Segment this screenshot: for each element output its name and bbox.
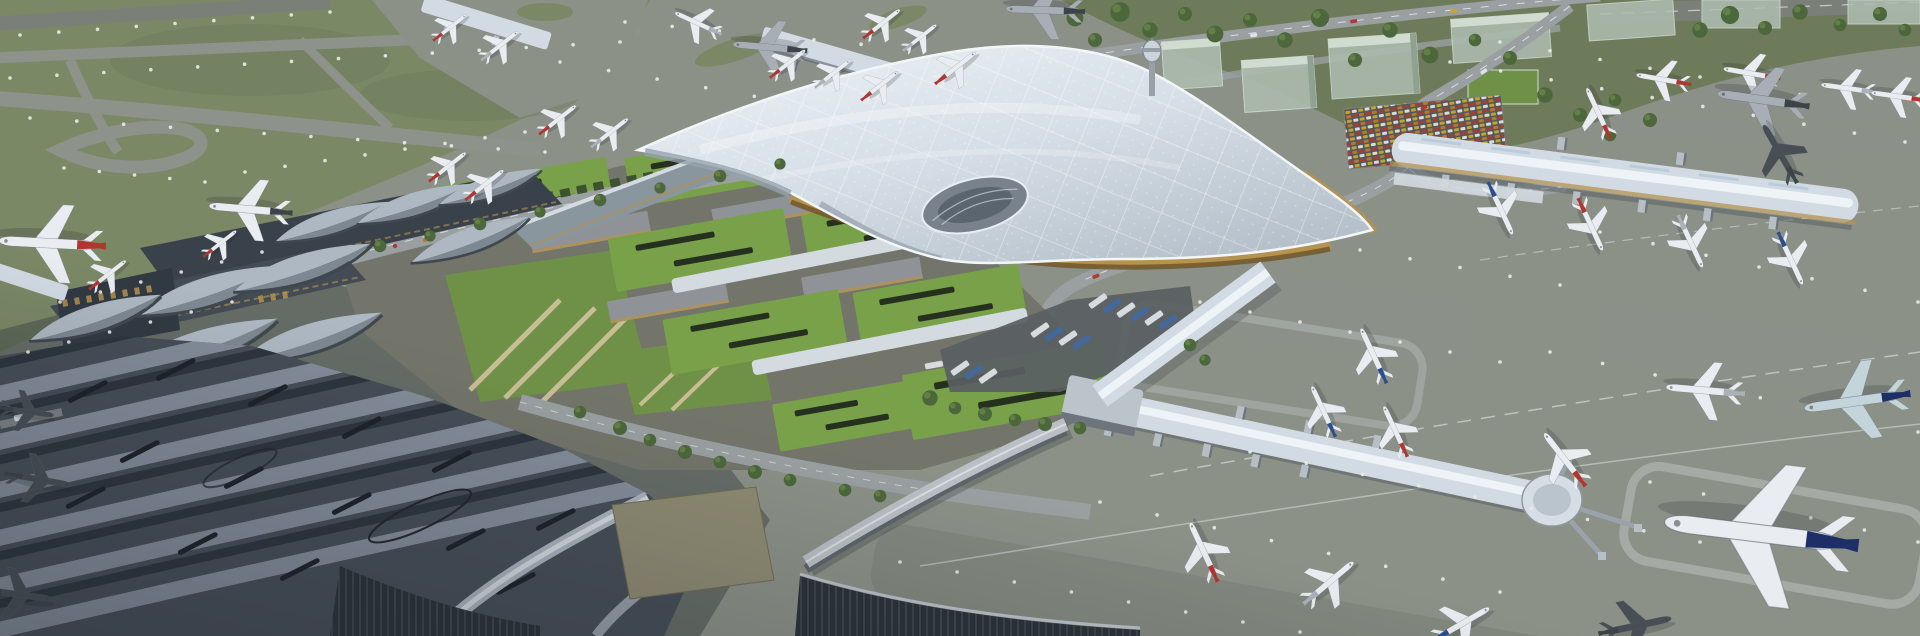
airport-rendering: [0, 0, 1920, 636]
shadow-vignette: [0, 0, 1920, 636]
airport-scene: [0, 0, 1920, 636]
